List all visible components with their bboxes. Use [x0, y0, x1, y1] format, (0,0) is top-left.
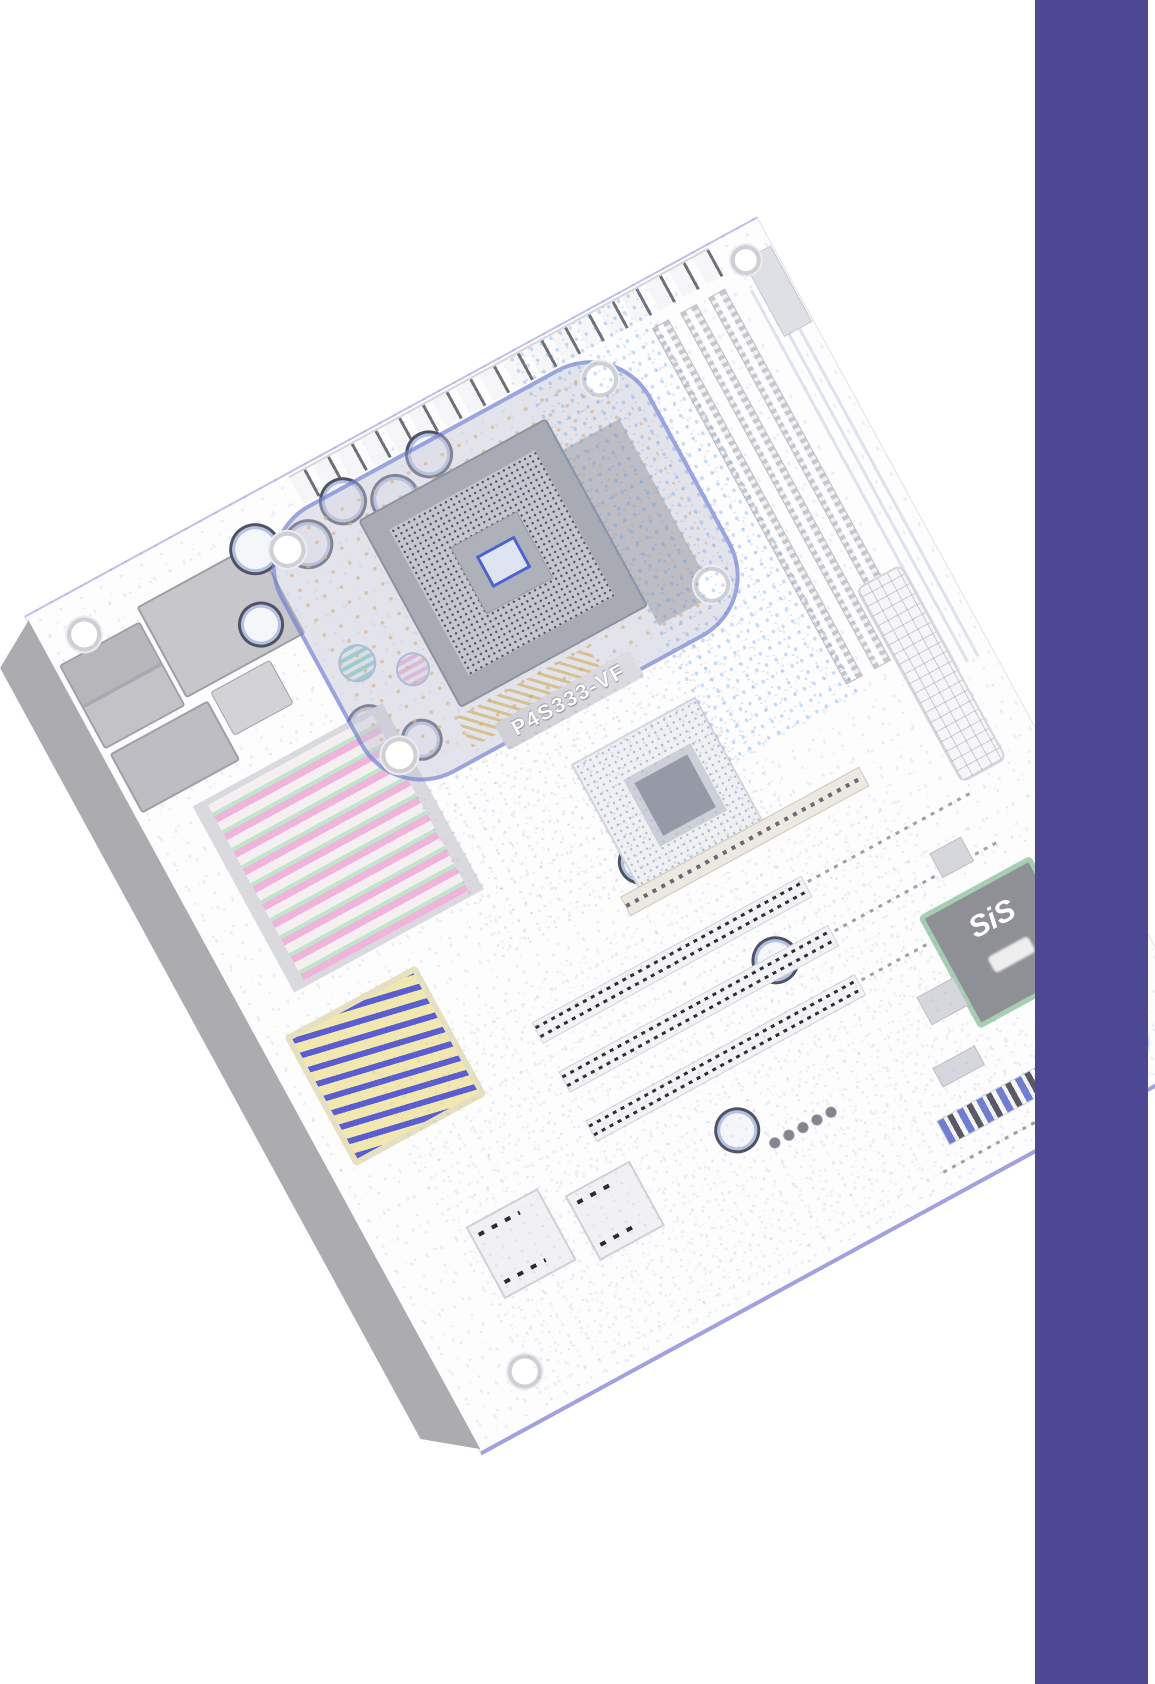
chapter-accent-bar	[1035, 0, 1148, 1684]
motherboard-photo: P4S333-VF SiS	[24, 216, 1155, 1455]
sis-logo-subtext-blur	[987, 936, 1036, 974]
manual-page: { "page": { "background_color": "#ffffff…	[0, 0, 1155, 1684]
